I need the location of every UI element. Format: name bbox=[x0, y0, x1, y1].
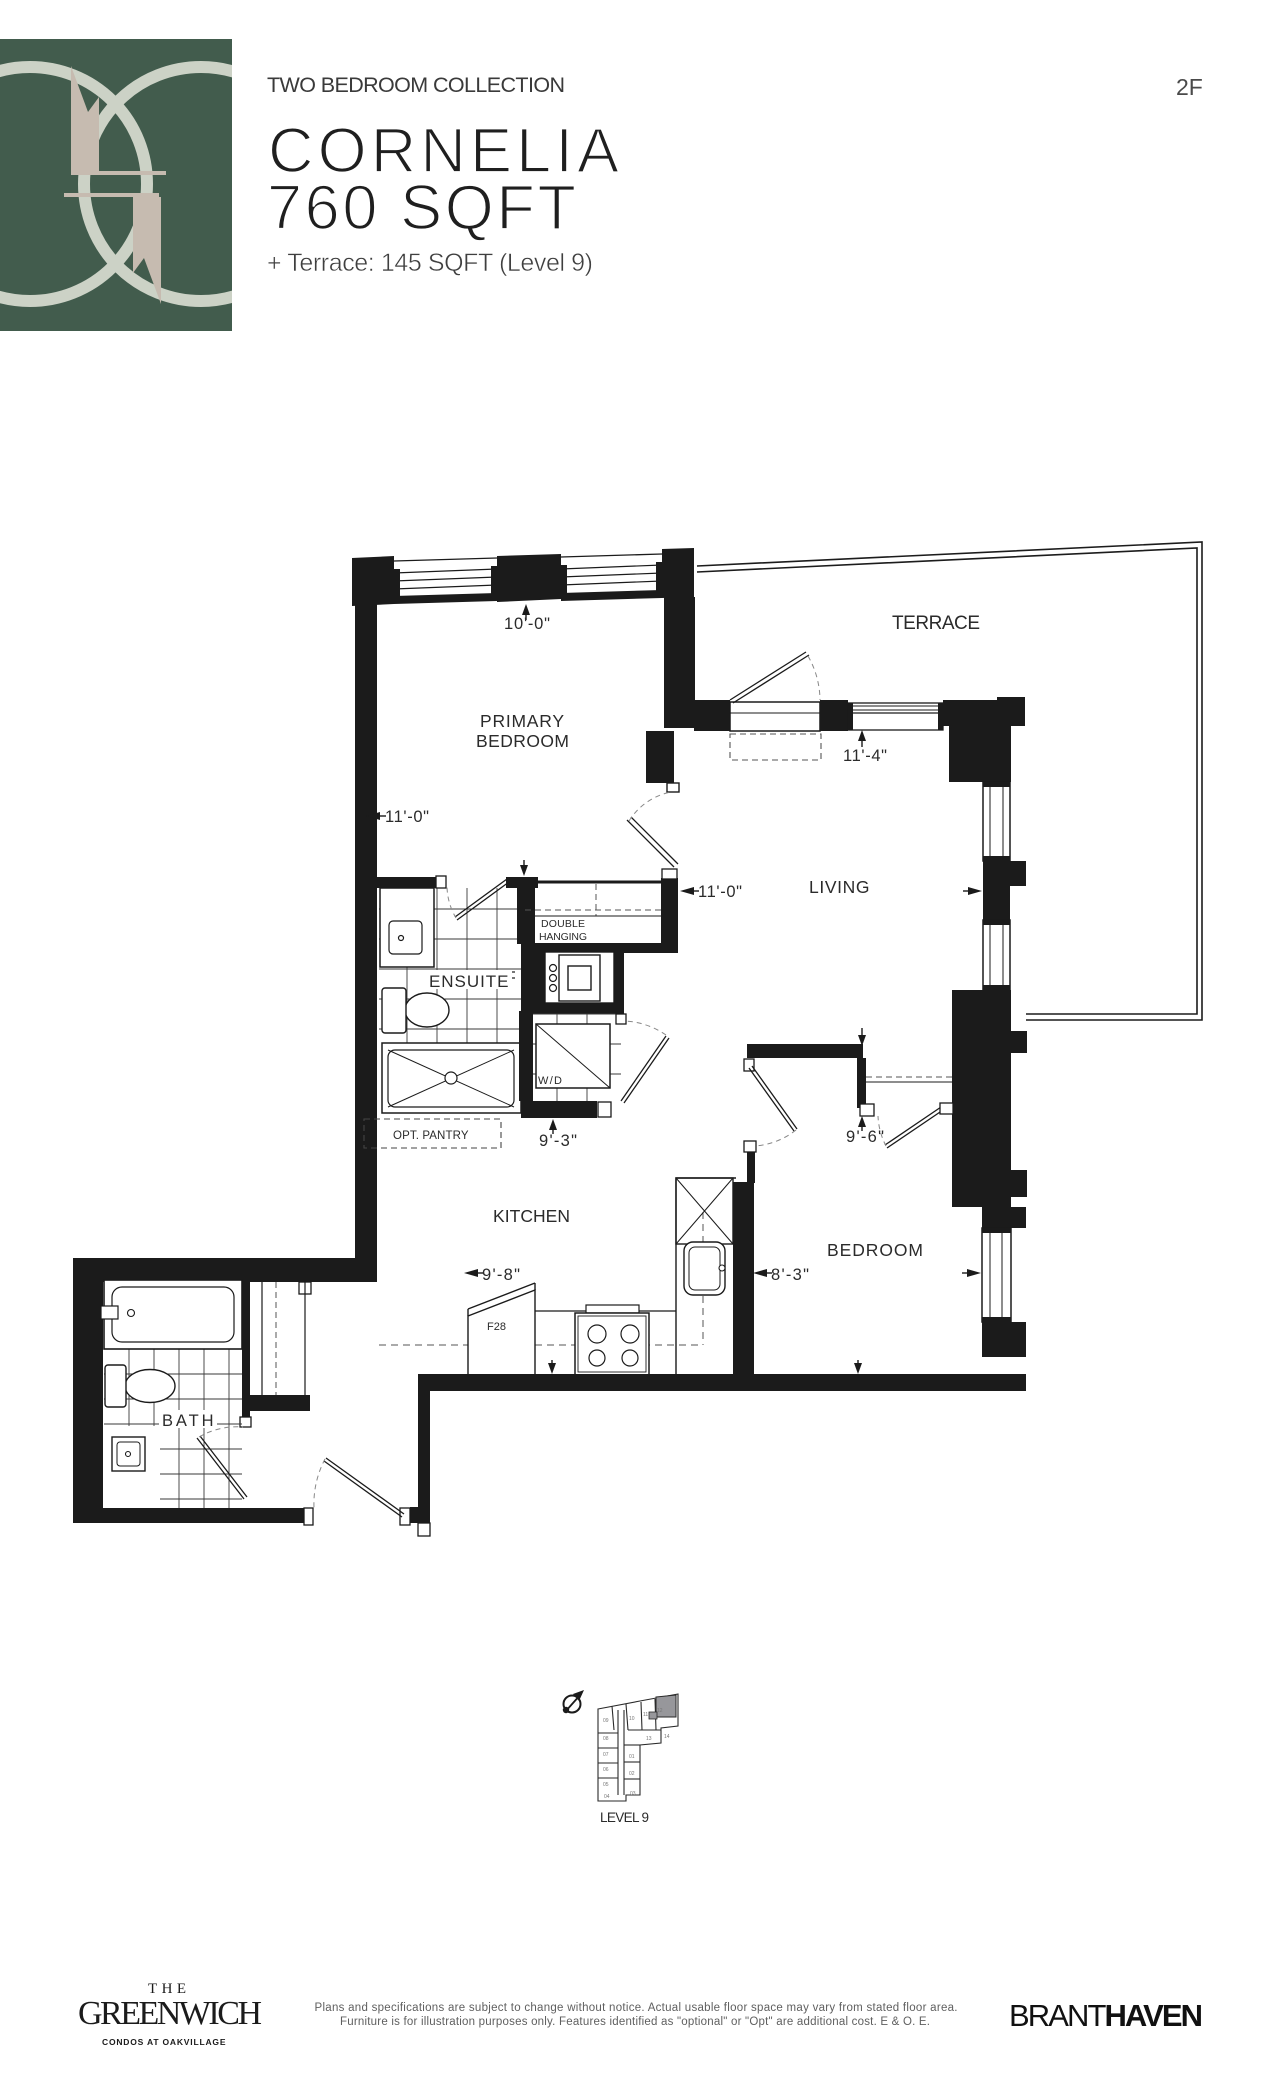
svg-text:01: 01 bbox=[629, 1754, 635, 1760]
svg-text:9'-3": 9'-3" bbox=[539, 1132, 577, 1150]
svg-text:LEVEL 9: LEVEL 9 bbox=[600, 1810, 650, 1825]
svg-text:Plans and specifications are s: Plans and specifications are subject to … bbox=[315, 2002, 958, 2014]
svg-text:05: 05 bbox=[603, 1782, 609, 1788]
svg-text:TWO BEDROOM COLLECTION: TWO BEDROOM COLLECTION bbox=[267, 73, 565, 97]
svg-text:11'-0": 11'-0" bbox=[385, 808, 429, 826]
svg-text:06: 06 bbox=[603, 1767, 609, 1773]
svg-text:02: 02 bbox=[629, 1771, 635, 1777]
svg-text:03: 03 bbox=[630, 1791, 636, 1797]
svg-text:TERRACE: TERRACE bbox=[892, 613, 982, 634]
svg-text:10'-0": 10'-0" bbox=[504, 615, 550, 633]
svg-text:BEDROOM: BEDROOM bbox=[827, 1240, 924, 1260]
svg-text:10: 10 bbox=[629, 1716, 635, 1722]
svg-text:14: 14 bbox=[664, 1734, 670, 1740]
svg-text:BEDROOM: BEDROOM bbox=[476, 731, 570, 751]
svg-text:12: 12 bbox=[657, 1708, 663, 1714]
svg-text:760 SQFT: 760 SQFT bbox=[267, 173, 576, 243]
svg-text:F28: F28 bbox=[487, 1321, 506, 1333]
svg-text:LIVING: LIVING bbox=[809, 877, 871, 897]
svg-text:07: 07 bbox=[603, 1752, 609, 1758]
svg-text:OPT. PANTRY: OPT. PANTRY bbox=[393, 1130, 469, 1142]
svg-text:9'-8": 9'-8" bbox=[482, 1266, 520, 1284]
svg-text:+ Terrace: 145 SQFT (Level 9): + Terrace: 145 SQFT (Level 9) bbox=[267, 249, 593, 277]
svg-text:08: 08 bbox=[603, 1736, 609, 1742]
svg-text:HANGING: HANGING bbox=[539, 931, 587, 943]
svg-text:KITCHEN: KITCHEN bbox=[493, 1206, 571, 1226]
svg-text:11: 11 bbox=[643, 1712, 648, 1718]
svg-text:13: 13 bbox=[646, 1736, 652, 1742]
svg-text:9'-6": 9'-6" bbox=[846, 1128, 884, 1146]
svg-text:W/D: W/D bbox=[538, 1075, 562, 1087]
svg-text:11'-0": 11'-0" bbox=[698, 883, 742, 901]
svg-text:DOUBLE: DOUBLE bbox=[541, 918, 585, 930]
svg-text:BATH: BATH bbox=[162, 1412, 214, 1430]
svg-text:GREENWICH: GREENWICH bbox=[78, 1995, 264, 2032]
svg-text:PRIMARY: PRIMARY bbox=[480, 711, 565, 731]
svg-text:BRANTHAVEN: BRANTHAVEN bbox=[1009, 1998, 1203, 2033]
svg-text:8'-3": 8'-3" bbox=[771, 1266, 809, 1284]
svg-text:2F: 2F bbox=[1176, 74, 1203, 100]
svg-text:04: 04 bbox=[604, 1794, 610, 1800]
svg-text:ENSUITE: ENSUITE bbox=[429, 972, 509, 991]
svg-text:11'-4": 11'-4" bbox=[843, 747, 887, 765]
svg-text:09: 09 bbox=[603, 1718, 609, 1724]
svg-text:CONDOS AT OAKVILLAGE: CONDOS AT OAKVILLAGE bbox=[102, 2037, 227, 2047]
svg-text:Furniture is for illustration: Furniture is for illustration purposes o… bbox=[340, 2016, 930, 2028]
